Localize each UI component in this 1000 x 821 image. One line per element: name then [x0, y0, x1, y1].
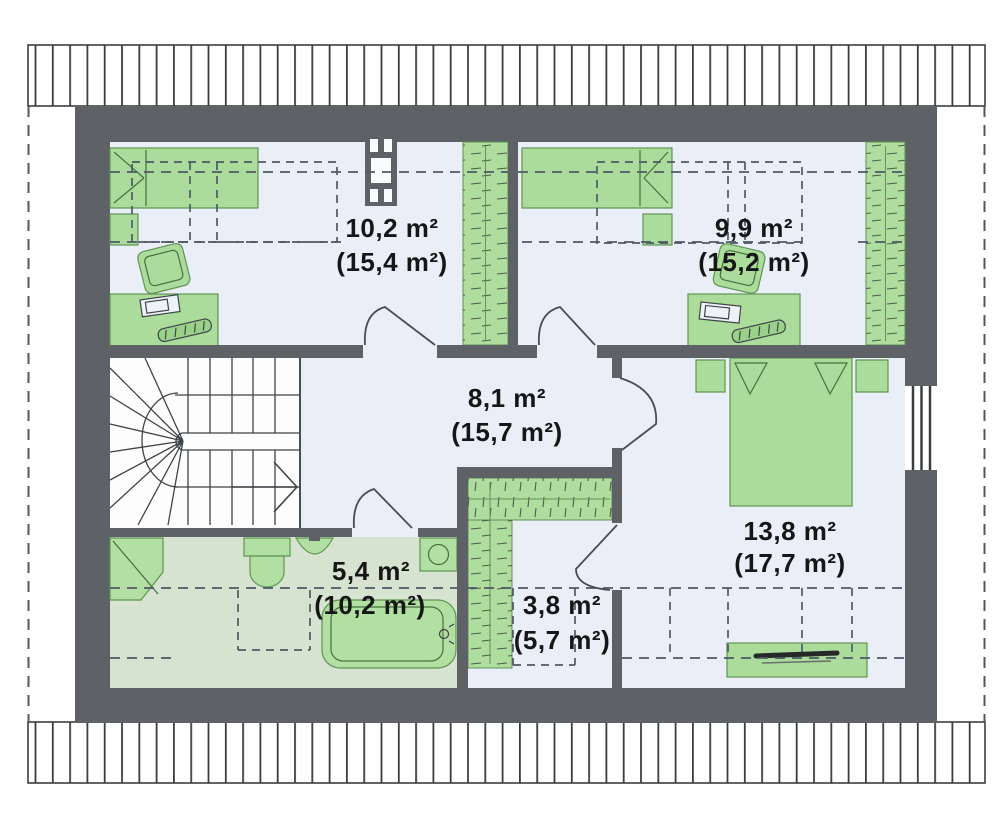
window-right-wall: [905, 386, 937, 470]
floor-stairwell: [110, 358, 300, 528]
hall-total: (15,7 m²): [451, 417, 562, 447]
hall-area: 8,1 m²: [468, 383, 546, 413]
roof-hatch-top: [28, 45, 985, 106]
double-bed: [730, 358, 852, 506]
roof-hatch-bottom: [28, 722, 985, 783]
room2-area: 9,9 m²: [715, 213, 793, 243]
nightstand-right: [856, 360, 888, 392]
nightstand-left: [696, 360, 725, 392]
room2-total: (15,2 m²): [698, 247, 809, 277]
bathroom-total: (10,2 m²): [314, 590, 425, 620]
toilet-bowl: [250, 556, 284, 587]
bathroom-area: 5,4 m²: [332, 556, 410, 586]
nightstand-room1: [110, 214, 138, 245]
washing-machine: [420, 538, 457, 571]
monitor-room2: [699, 302, 741, 323]
room1-area: 10,2 m²: [345, 213, 438, 243]
wardrobe-total: (5,7 m²): [514, 625, 610, 655]
floor-plan-page: 10,2 m² (15,4 m²) 9,9 m² (15,2 m²) 8,1 m…: [0, 0, 1000, 821]
room1-total: (15,4 m²): [336, 247, 447, 277]
dresser-tv: [727, 643, 867, 677]
nightstand-room2: [643, 214, 672, 245]
chimney: [365, 133, 397, 206]
floor-plan-drawing: 10,2 m² (15,4 m²) 9,9 m² (15,2 m²) 8,1 m…: [0, 0, 1000, 821]
bedroom-total: (17,7 m²): [734, 548, 845, 578]
wardrobe-area: 3,8 m²: [523, 590, 601, 620]
bedroom-area: 13,8 m²: [743, 516, 836, 546]
toilet-tank: [244, 538, 290, 556]
